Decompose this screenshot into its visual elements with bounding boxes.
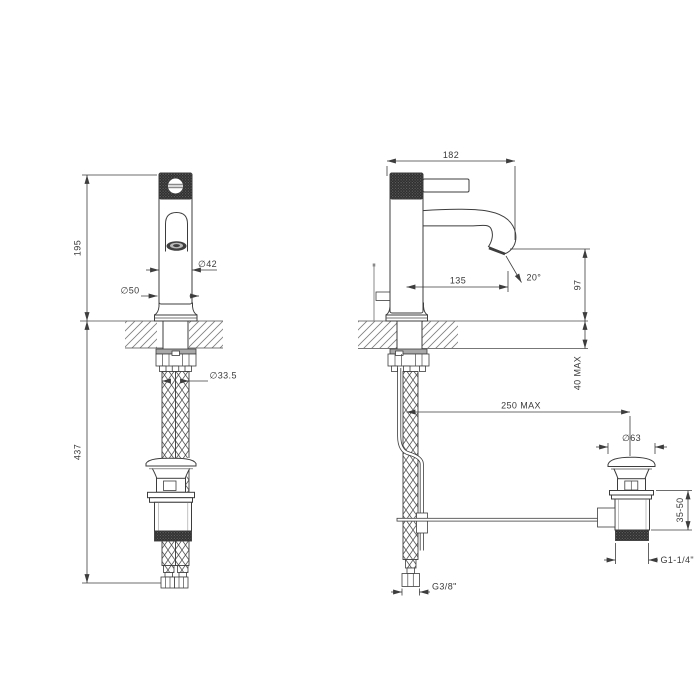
dim-label-thread-g38: G3/8": [432, 582, 457, 592]
front-shank: [163, 321, 188, 350]
side-waste-rod-housing: [598, 508, 616, 527]
dim-label-deck-40-max: 40 MAX: [573, 356, 583, 390]
side-view: 182 135 20° 97 40 MAX 250 MAX ∅63 35-50: [358, 150, 694, 596]
front-mounting-hardware: [156, 349, 196, 372]
side-deck-hatch-left: [358, 322, 397, 349]
drawing-page: 195 437 ∅42 ∅50 ∅33.5: [0, 0, 700, 700]
front-waste-slot: [164, 481, 177, 491]
dim-label-thread-g114: G1-1/4": [661, 555, 695, 565]
dim-label-angle-20: 20°: [527, 273, 542, 283]
side-mounting-hardware: [388, 349, 429, 372]
front-waste-cap: [146, 458, 196, 466]
front-waste-cylinder: [155, 502, 192, 531]
front-base-flare: [155, 303, 198, 315]
dim-label-reach-135: 135: [450, 276, 466, 286]
side-waste-cylinder: [615, 499, 650, 530]
side-shank: [397, 321, 422, 350]
front-mounting-tab: [172, 351, 180, 356]
dim-label-depth-437: 437: [73, 444, 83, 460]
dim-label-dia-63: ∅63: [622, 433, 641, 443]
side-deck: [358, 321, 588, 349]
side-mounting-tab: [396, 351, 404, 356]
dim-label-width-182: 182: [443, 150, 459, 160]
front-deck: [80, 321, 223, 348]
side-deck-hatch-right: [423, 322, 459, 349]
side-waste-thread-band: [616, 530, 649, 541]
side-lever-handle: [423, 179, 469, 192]
dim-label-height-97: 97: [573, 280, 583, 291]
dim-label-dia-33-5: ∅33.5: [210, 371, 237, 381]
dim-label-35-50: 35-50: [675, 497, 685, 522]
side-popup-waste: [598, 457, 656, 540]
dim-label-250-max: 250 MAX: [501, 401, 541, 411]
technical-drawing: 195 437 ∅42 ∅50 ∅33.5: [0, 0, 700, 700]
side-linkage-rod: [397, 518, 598, 521]
side-popup-rod-upper: [373, 264, 376, 322]
front-waste-flange: [148, 492, 195, 497]
dim-label-dia-42: ∅42: [198, 259, 217, 269]
front-view: 195 437 ∅42 ∅50 ∅33.5: [73, 173, 237, 588]
side-knurl-band: [390, 173, 423, 199]
side-waste-flange: [610, 491, 654, 496]
side-rod-knob: [376, 292, 390, 301]
side-spout: [423, 209, 516, 253]
front-faucet: [155, 173, 198, 321]
side-faucet: [376, 173, 516, 321]
side-flex-hose: [402, 372, 420, 587]
dim-label-dia-50: ∅50: [121, 286, 140, 296]
side-hose: [403, 372, 418, 560]
side-rod-clamp: [417, 513, 428, 533]
side-waste-cap: [608, 457, 655, 466]
side-mounting-nut: [388, 354, 429, 366]
front-deck-hatch-right: [189, 322, 223, 349]
front-deck-hatch-left: [125, 322, 157, 349]
side-hose-nut: [402, 574, 420, 587]
front-popup-waste: [146, 458, 196, 541]
front-waste-thread-band: [155, 531, 192, 541]
dim-label-height-195: 195: [73, 240, 83, 256]
front-hose-nuts: [161, 577, 188, 588]
